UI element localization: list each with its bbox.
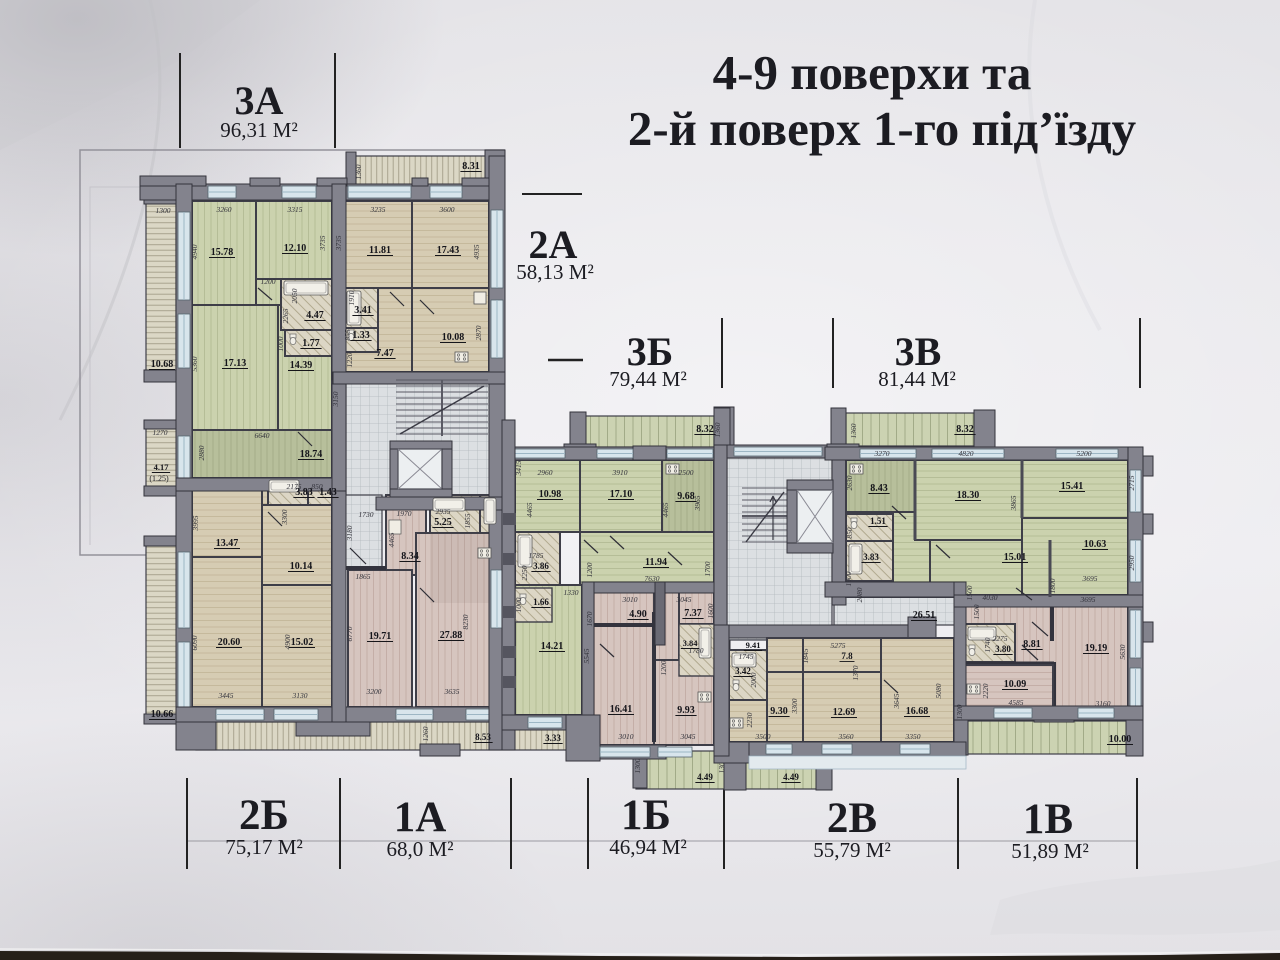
svg-text:8.32: 8.32 [696,424,714,435]
svg-text:2В: 2В [827,795,877,842]
svg-text:15.01: 15.01 [1004,552,1027,563]
svg-text:2935: 2935 [436,507,451,516]
svg-text:2250: 2250 [520,565,529,580]
svg-text:2080: 2080 [855,587,864,602]
svg-text:10.08: 10.08 [442,332,465,343]
svg-text:1200: 1200 [585,562,594,577]
svg-text:2500: 2500 [679,468,694,477]
svg-text:3А: 3А [235,78,284,123]
svg-text:8.81: 8.81 [1023,639,1041,650]
svg-text:1745: 1745 [739,652,754,661]
svg-text:1.33: 1.33 [352,330,370,341]
svg-text:7630: 7630 [645,574,660,583]
svg-text:3150: 3150 [331,391,340,407]
svg-text:1330: 1330 [564,588,579,597]
svg-text:9.93: 9.93 [677,705,695,716]
svg-text:3300: 3300 [790,698,799,714]
svg-text:2050: 2050 [290,288,299,303]
svg-text:55,79 М²: 55,79 М² [813,838,890,862]
svg-text:14.21: 14.21 [541,641,564,652]
svg-text:3010: 3010 [622,595,638,604]
svg-text:1.51: 1.51 [870,516,886,526]
svg-text:3.83: 3.83 [295,487,313,498]
svg-text:1845: 1845 [801,648,810,663]
svg-text:4-9 поверхи та: 4-9 поверхи та [713,45,1032,100]
svg-text:1360: 1360 [354,164,363,179]
svg-text:2950: 2950 [1127,555,1136,570]
svg-text:4.90: 4.90 [629,609,647,620]
svg-text:3010: 3010 [618,732,634,741]
svg-text:1360: 1360 [713,422,722,437]
svg-text:17.13: 17.13 [224,358,247,369]
svg-text:1000: 1000 [276,336,285,351]
svg-text:8230: 8230 [461,614,470,629]
svg-text:10.00: 10.00 [1109,734,1132,745]
svg-text:9.30: 9.30 [770,706,788,717]
svg-text:2Б: 2Б [239,792,289,839]
svg-text:3130: 3130 [292,691,308,700]
svg-text:1300: 1300 [156,206,171,215]
svg-text:1200: 1200 [659,660,668,675]
svg-text:79,44 М²: 79,44 М² [609,367,686,391]
svg-text:3270: 3270 [874,449,890,458]
svg-text:18.30: 18.30 [957,490,980,501]
svg-text:1360: 1360 [849,423,858,438]
svg-text:2-й поверх 1-го під’їзду: 2-й поверх 1-го під’їзду [628,101,1137,156]
svg-text:8.31: 8.31 [462,161,480,172]
svg-text:10.98: 10.98 [539,489,562,500]
svg-text:1785: 1785 [529,551,544,560]
svg-text:11.94: 11.94 [645,557,667,568]
svg-text:4465: 4465 [661,502,670,517]
svg-text:3.86: 3.86 [533,561,549,571]
svg-text:8.53: 8.53 [475,732,491,742]
svg-text:2275: 2275 [993,634,1008,643]
svg-text:3560: 3560 [838,732,854,741]
svg-text:4.17: 4.17 [154,462,170,472]
svg-text:1200: 1200 [261,277,276,286]
svg-text:17.43: 17.43 [437,245,460,256]
svg-text:2630: 2630 [845,475,854,490]
svg-text:8.34: 8.34 [401,551,419,562]
svg-text:3500: 3500 [755,732,771,741]
svg-text:1Б: 1Б [621,792,671,839]
svg-text:3415: 3415 [514,460,523,476]
svg-text:27.88: 27.88 [440,630,463,641]
svg-text:1910: 1910 [347,290,356,305]
svg-text:5545: 5545 [582,648,591,663]
svg-text:1730: 1730 [359,510,374,519]
svg-text:2715: 2715 [1127,475,1136,490]
svg-text:3445: 3445 [218,691,234,700]
svg-text:15.78: 15.78 [211,247,234,258]
svg-text:3180: 3180 [345,525,354,541]
svg-text:18.74: 18.74 [300,449,323,460]
svg-text:3635: 3635 [444,687,460,696]
svg-text:46,94 М²: 46,94 М² [609,835,686,859]
svg-text:3.42: 3.42 [735,666,751,676]
svg-text:3260: 3260 [216,205,232,214]
svg-text:15.02: 15.02 [291,637,314,648]
svg-text:3735: 3735 [318,235,327,251]
svg-text:3350: 3350 [905,732,921,741]
svg-text:2960: 2960 [538,468,553,477]
svg-text:2870: 2870 [474,325,483,340]
svg-text:3200: 3200 [366,687,382,696]
svg-text:1В: 1В [1023,796,1073,843]
svg-text:3315: 3315 [287,205,303,214]
svg-text:3.41: 3.41 [354,305,372,316]
svg-text:6770: 6770 [345,626,354,641]
svg-text:4030: 4030 [983,593,998,602]
svg-text:4465: 4465 [387,532,396,547]
svg-text:1800: 1800 [1048,578,1057,593]
svg-text:10.14: 10.14 [290,561,313,572]
svg-text:855: 855 [343,329,352,341]
svg-text:7.8: 7.8 [841,651,853,661]
svg-text:3695: 3695 [1080,595,1096,604]
svg-text:81,44 М²: 81,44 М² [878,367,955,391]
svg-text:2265: 2265 [281,308,290,323]
svg-text:4940: 4940 [190,244,199,259]
svg-text:3735: 3735 [334,235,343,251]
svg-text:19.19: 19.19 [1085,643,1108,654]
svg-text:15.41: 15.41 [1061,481,1084,492]
svg-text:1500: 1500 [972,604,981,619]
svg-text:3045: 3045 [676,595,692,604]
svg-text:8.32: 8.32 [956,424,974,435]
svg-text:1370: 1370 [851,665,860,680]
svg-text:58,13 М²: 58,13 М² [516,260,593,284]
svg-text:10.63: 10.63 [1084,539,1107,550]
svg-text:3.83: 3.83 [863,552,879,562]
svg-text:5.25: 5.25 [434,517,452,528]
svg-text:1260: 1260 [421,726,430,741]
svg-text:12.69: 12.69 [833,707,856,718]
svg-text:3045: 3045 [680,732,696,741]
svg-text:5080: 5080 [934,683,943,698]
svg-text:4935: 4935 [472,244,481,259]
svg-text:1А: 1А [394,794,447,841]
svg-text:2230: 2230 [745,712,754,727]
svg-text:5200: 5200 [1077,449,1092,458]
svg-text:1500: 1500 [965,585,974,600]
svg-text:4465: 4465 [525,502,534,517]
svg-text:5275: 5275 [831,641,846,650]
svg-text:20.60: 20.60 [218,637,241,648]
svg-text:3695: 3695 [1082,574,1098,583]
svg-text:9.41: 9.41 [746,640,761,650]
svg-text:11.81: 11.81 [369,245,391,256]
svg-text:3600: 3600 [439,205,455,214]
svg-text:9.68: 9.68 [677,491,695,502]
svg-text:5360: 5360 [190,356,199,371]
svg-text:3160: 3160 [1095,699,1111,708]
svg-text:3910: 3910 [612,468,628,477]
svg-text:(1.25): (1.25) [149,474,169,483]
svg-text:19.71: 19.71 [369,631,392,642]
svg-text:7.37: 7.37 [684,608,702,619]
svg-text:1220: 1220 [345,352,354,367]
svg-text:2220: 2220 [981,683,990,698]
svg-text:16.68: 16.68 [906,706,929,717]
svg-text:1.43: 1.43 [319,487,337,498]
svg-text:75,17 М²: 75,17 М² [225,835,302,859]
svg-text:10.09: 10.09 [1004,679,1027,690]
svg-text:12.10: 12.10 [284,243,307,254]
svg-text:4.47: 4.47 [306,310,324,321]
svg-text:4820: 4820 [959,449,974,458]
svg-text:1670: 1670 [585,611,594,626]
svg-text:850: 850 [845,527,854,539]
svg-text:3300: 3300 [280,509,289,525]
svg-text:51,89 М²: 51,89 М² [1011,839,1088,863]
svg-text:1300: 1300 [955,704,964,719]
svg-text:1865: 1865 [356,572,371,581]
svg-text:3.33: 3.33 [545,733,561,743]
svg-text:1.66: 1.66 [533,597,549,607]
svg-text:8.43: 8.43 [870,483,888,494]
svg-text:3995: 3995 [191,515,200,531]
svg-text:4585: 4585 [1009,698,1024,707]
svg-text:1740: 1740 [983,637,992,652]
svg-text:1300: 1300 [633,758,642,773]
svg-text:4.49: 4.49 [697,772,713,782]
svg-text:96,31 М²: 96,31 М² [220,118,297,142]
svg-text:6090: 6090 [190,635,199,650]
svg-text:1970: 1970 [397,509,412,518]
svg-text:3.80: 3.80 [995,644,1011,654]
svg-text:68,0 М²: 68,0 М² [387,837,454,861]
svg-text:3.84: 3.84 [683,638,699,648]
svg-text:2880: 2880 [197,445,206,460]
svg-text:14.39: 14.39 [290,360,313,371]
svg-text:17.10: 17.10 [610,489,633,500]
svg-text:10.66: 10.66 [151,709,174,720]
svg-text:13.47: 13.47 [216,538,239,549]
svg-text:3235: 3235 [370,205,386,214]
svg-text:6640: 6640 [255,431,270,440]
svg-text:16.41: 16.41 [610,704,633,715]
svg-text:1.77: 1.77 [302,338,320,349]
svg-text:3865: 3865 [1009,495,1018,511]
svg-text:5630: 5630 [1118,644,1127,659]
svg-text:1270: 1270 [153,428,168,437]
svg-text:10.68: 10.68 [151,359,174,370]
svg-text:1000: 1000 [514,597,523,612]
svg-text:7.47: 7.47 [376,348,394,359]
svg-text:26.51: 26.51 [913,610,936,621]
svg-text:1900: 1900 [844,571,853,586]
svg-text:4.49: 4.49 [783,772,799,782]
svg-text:3645: 3645 [892,693,901,709]
svg-text:1855: 1855 [463,513,472,528]
svg-text:1700: 1700 [703,561,712,576]
